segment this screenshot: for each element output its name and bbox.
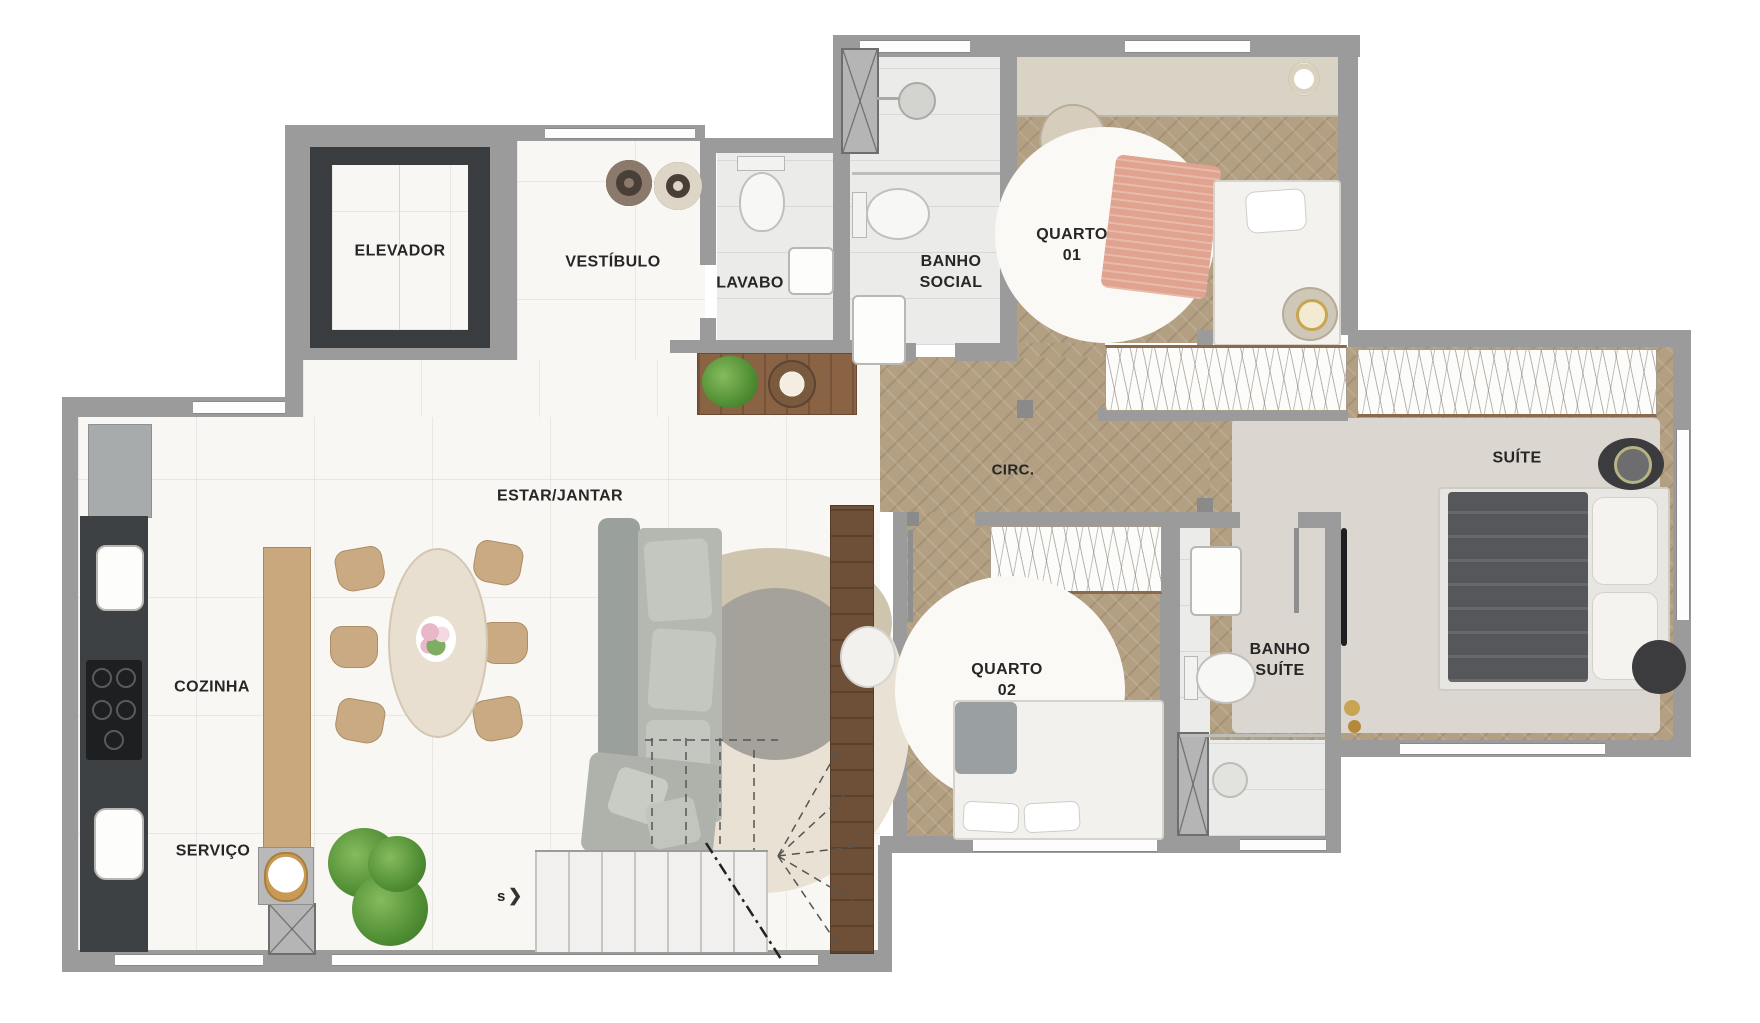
lavabo-toilet-tank [737, 156, 785, 171]
suite-side-table-bottom [1632, 640, 1686, 694]
tv-console [830, 505, 874, 954]
room-label-servico: SERVIÇO [176, 842, 251, 863]
sofa-cushion-1 [643, 538, 712, 622]
cooktop-burner-3 [92, 700, 112, 720]
staircase [535, 850, 768, 952]
wall-banho-suite-right [1325, 512, 1341, 853]
banho-social-sink [852, 295, 906, 365]
room-label-cozinha: COZINHA [174, 678, 250, 699]
shaft-banho-suite [1177, 732, 1209, 836]
shaft-banho-social [841, 48, 879, 154]
banho-social-toilet-tank [852, 192, 867, 238]
wall-quarto-02-top [975, 512, 1160, 526]
window-suite-right [1676, 430, 1690, 620]
lavabo-toilet-bowl [739, 172, 785, 232]
jamb-quarto-02-door [905, 512, 919, 526]
stair-start-marker: s [497, 888, 505, 905]
banho-social-shower-glass [852, 172, 1000, 175]
fridge [88, 424, 152, 518]
wall-lavabo-top [700, 138, 833, 153]
suite-wardrobe [1357, 349, 1657, 417]
window-living-bottom-right [332, 954, 818, 966]
lavabo-sink [788, 247, 834, 295]
wall-banho-suite-top-right [1298, 512, 1325, 528]
room-label-vestibulo: VESTÍBULO [565, 253, 660, 274]
window-suite-bottom [1400, 743, 1605, 755]
quarto-01-side-table-tray [1296, 299, 1328, 331]
window-living-bottom-left [115, 954, 263, 966]
wall-quarto-01-right [1338, 35, 1358, 335]
room-label-estar-jantar: ESTAR/JANTAR [497, 487, 623, 508]
cooktop-burner-4 [116, 700, 136, 720]
vestibule-pouf-cream [654, 162, 702, 210]
window-vestibule-top [545, 128, 695, 139]
wall-vanity-back [670, 340, 853, 353]
banho-suite-sink [1190, 546, 1242, 616]
kitchen-sink [96, 545, 144, 611]
laundry-tank [94, 808, 144, 880]
stair-direction-arrow: ❯ [508, 886, 522, 906]
cooktop-burner-1 [92, 668, 112, 688]
sofa-cushion-2 [647, 628, 716, 712]
quarto-01-pillow [1245, 188, 1308, 234]
quarto-01-wardrobe [1105, 345, 1347, 411]
suite-decor-gold-1 [1344, 700, 1360, 716]
floor-plan-canvas: s ❯ [0, 0, 1760, 1023]
laundry-basket [264, 852, 308, 902]
wall-kitchen-connector [285, 360, 303, 417]
room-label-circ: CIRC. [992, 460, 1035, 480]
banho-suite-toilet-bowl [1196, 652, 1256, 704]
banho-social-shower-head [898, 82, 936, 120]
room-label-elevador: ELEVADOR [355, 242, 446, 263]
dining-chair-2 [330, 626, 378, 668]
cooktop-burner-5 [104, 730, 124, 750]
vestibule-pouf-dark [606, 160, 652, 206]
console-chair [840, 626, 896, 688]
plant-servico-3 [368, 836, 426, 892]
quarto-02-throw [955, 702, 1017, 774]
shaft-servico [268, 903, 316, 955]
room-label-quarto-02: QUARTO 02 [971, 660, 1042, 702]
quarto-01-flower-decor [1288, 62, 1320, 96]
lavabo-vanity-basin [768, 360, 816, 408]
room-label-banho-social: BANHO SOCIAL [920, 252, 983, 294]
window-quarto-02-bottom [973, 839, 1157, 852]
suite-decor-gold-2 [1348, 720, 1361, 733]
island-counter [263, 547, 311, 849]
room-label-quarto-01: QUARTO 01 [1036, 225, 1107, 267]
banho-suite-shower-glass [1180, 734, 1325, 737]
dining-centerpiece-flowers [416, 616, 456, 662]
jamb-quarto-01-door [1017, 400, 1033, 418]
window-quarto-01-top [1125, 40, 1250, 53]
suite-side-table-tray [1614, 446, 1652, 484]
wall-vestibule-lavabo [700, 153, 716, 265]
suite-bed-blanket [1448, 492, 1588, 682]
wall-left [62, 397, 78, 972]
jamb-suite-door [1197, 498, 1213, 512]
lavabo-vanity-plant [702, 356, 758, 408]
window-kitchen-top [193, 401, 295, 414]
banho-social-toilet-bowl [866, 188, 930, 240]
suite-tv [1341, 528, 1347, 646]
banho-social-shower-arm [876, 97, 900, 100]
room-label-lavabo: LAVABO [716, 274, 784, 295]
quarto-01-blanket [1100, 154, 1222, 300]
quarto-02-pillow-1 [962, 801, 1019, 834]
wall-banho-suite-top-left [1180, 512, 1240, 528]
wall-banho-social-bottom-right [955, 343, 1017, 361]
door-quarto-02 [908, 530, 913, 622]
window-banho-suite-bottom [1240, 839, 1326, 851]
suite-pillow-1 [1592, 497, 1658, 585]
room-label-banho-suite: BANHO SUÍTE [1250, 640, 1311, 682]
wall-suite-top [1348, 330, 1690, 347]
cooktop-burner-2 [116, 668, 136, 688]
quarto-02-pillow-2 [1023, 801, 1080, 834]
room-label-suite: SUÍTE [1492, 449, 1541, 470]
door-banho-suite [1294, 528, 1299, 613]
banho-suite-shower-drain [1212, 762, 1248, 798]
